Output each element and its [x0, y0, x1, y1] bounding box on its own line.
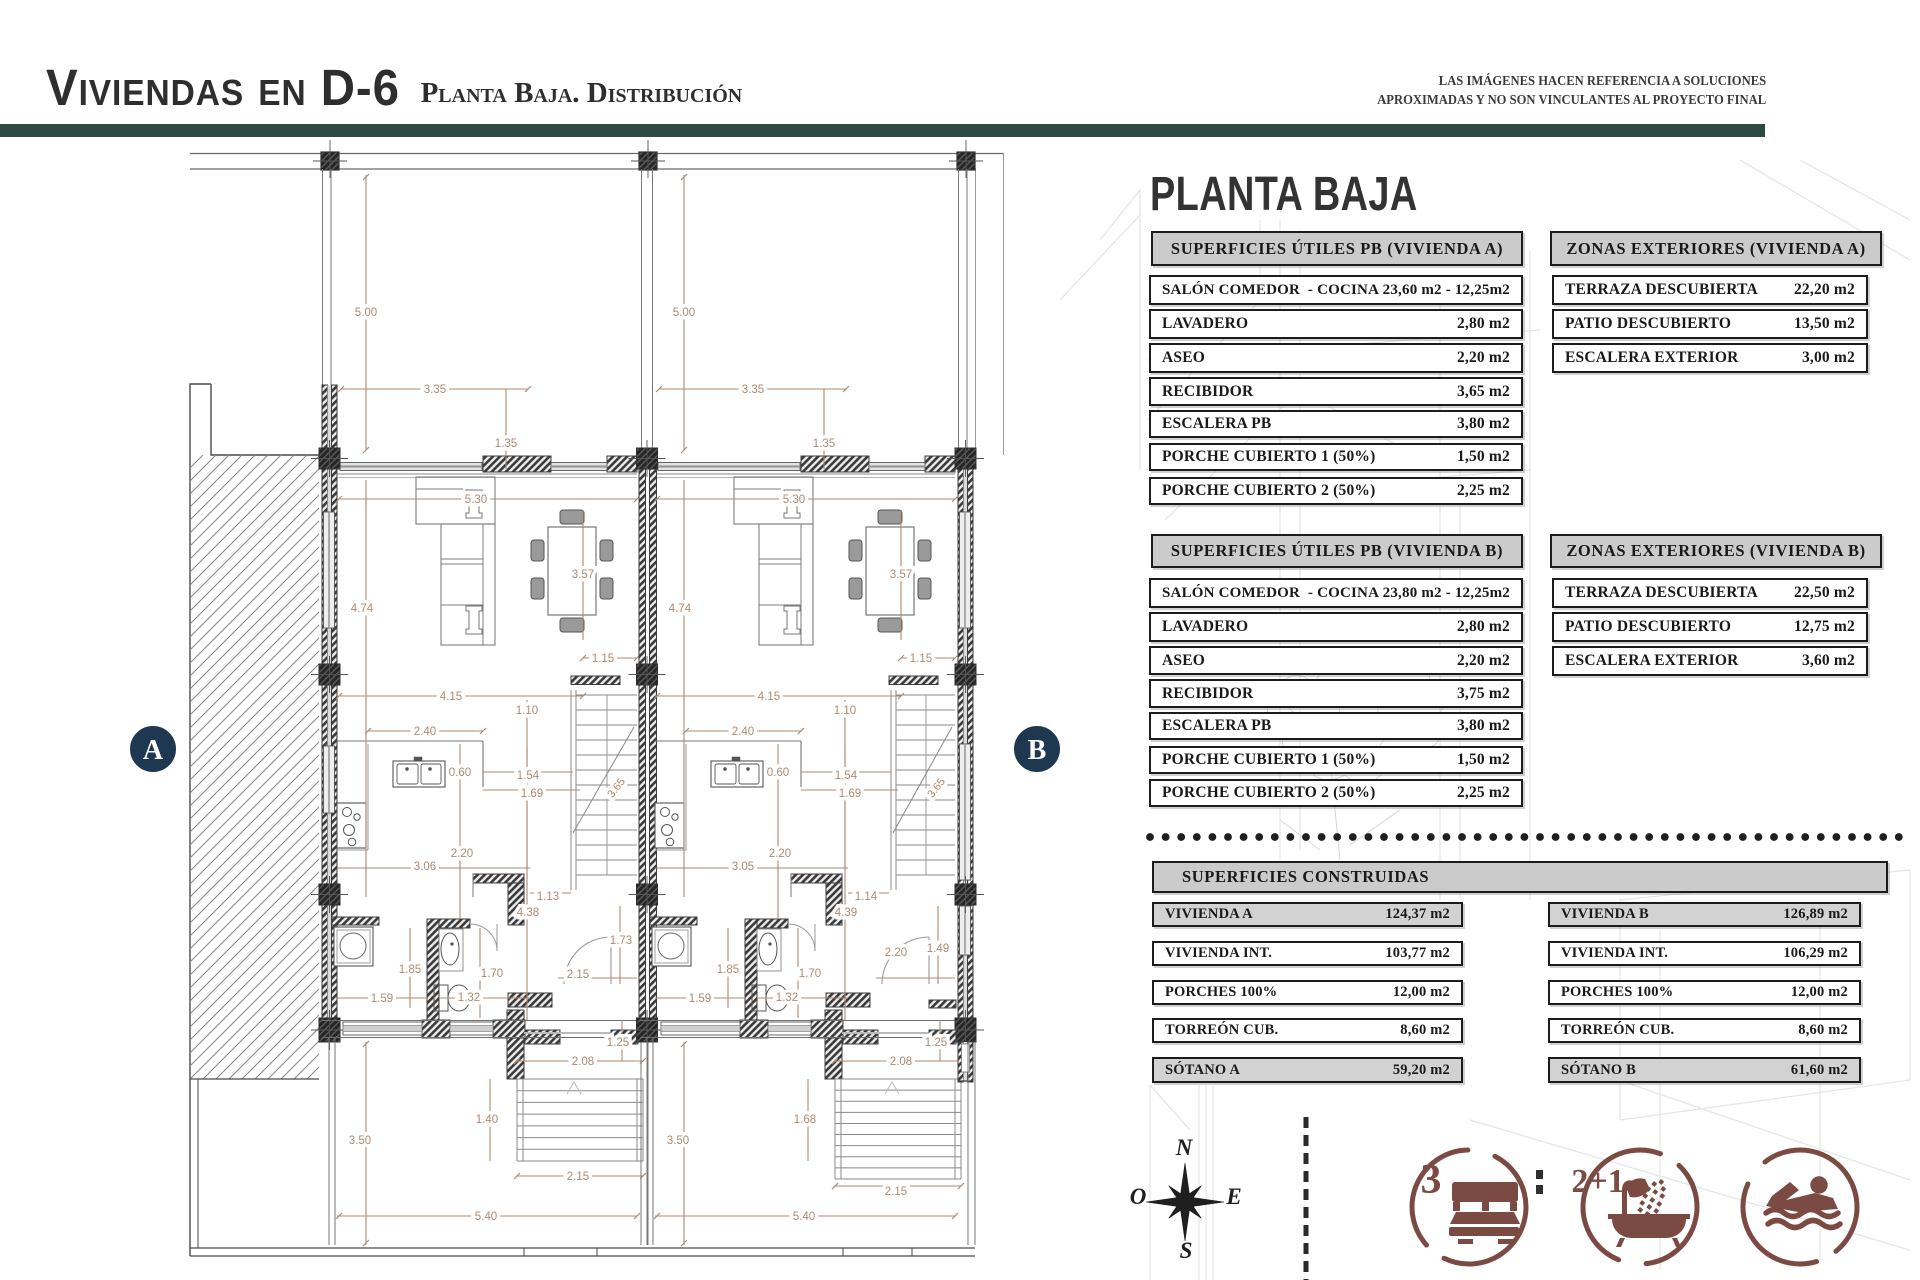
svg-text:3.65: 3.65	[925, 776, 948, 800]
svg-text:4.15: 4.15	[440, 691, 462, 703]
svg-text:4.15: 4.15	[758, 691, 780, 703]
svg-text:1.59: 1.59	[371, 993, 393, 1005]
svg-text:1.32: 1.32	[458, 992, 480, 1004]
svg-text:3.50: 3.50	[667, 1135, 689, 1147]
svg-text:1.25: 1.25	[925, 1037, 947, 1049]
svg-text:1.10: 1.10	[834, 705, 856, 717]
svg-text:0.60: 0.60	[449, 767, 471, 779]
svg-text:1.15: 1.15	[910, 653, 932, 665]
svg-text:5.00: 5.00	[355, 307, 377, 319]
svg-text:3.35: 3.35	[742, 384, 764, 396]
svg-text:B: B	[1028, 735, 1047, 766]
svg-text:1.32: 1.32	[776, 992, 798, 1004]
svg-text:2.20: 2.20	[451, 848, 473, 860]
svg-text:2.40: 2.40	[414, 726, 436, 738]
svg-text:N: N	[1175, 1135, 1194, 1160]
svg-text:1.25: 1.25	[607, 1037, 629, 1049]
svg-text:1.14: 1.14	[855, 891, 878, 903]
svg-text:1.10: 1.10	[516, 705, 538, 717]
svg-text:3.65: 3.65	[605, 776, 628, 800]
svg-text:0.60: 0.60	[767, 767, 789, 779]
svg-text:3.05: 3.05	[732, 861, 754, 873]
svg-text:2.15: 2.15	[567, 1171, 589, 1183]
svg-text:2.15: 2.15	[567, 969, 589, 981]
svg-text:2.15: 2.15	[885, 1186, 907, 1198]
svg-text:1.70: 1.70	[799, 968, 821, 980]
svg-text:5.30: 5.30	[783, 494, 805, 506]
svg-text:3.35: 3.35	[424, 384, 446, 396]
svg-text:1.35: 1.35	[813, 438, 835, 450]
svg-text:E: E	[1225, 1184, 1241, 1209]
svg-text:5.00: 5.00	[673, 307, 695, 319]
svg-text:3.57: 3.57	[890, 569, 912, 581]
svg-text:3.50: 3.50	[349, 1135, 371, 1147]
svg-text:2.40: 2.40	[732, 726, 754, 738]
svg-text:1.69: 1.69	[839, 788, 861, 800]
svg-text:2.20: 2.20	[769, 848, 791, 860]
svg-text:3.06: 3.06	[414, 861, 436, 873]
svg-text:1.59: 1.59	[689, 993, 711, 1005]
svg-text:1.73: 1.73	[610, 935, 632, 947]
svg-text:2+1: 2+1	[1571, 1163, 1624, 1200]
svg-text:5.40: 5.40	[793, 1211, 815, 1223]
svg-text:1.54: 1.54	[835, 770, 858, 782]
svg-text:1.85: 1.85	[717, 964, 739, 976]
svg-text:2.08: 2.08	[572, 1056, 594, 1068]
svg-text:A: A	[143, 735, 164, 766]
svg-text:5.40: 5.40	[475, 1211, 497, 1223]
svg-text:4.74: 4.74	[351, 603, 374, 615]
svg-text:1.85: 1.85	[399, 964, 421, 976]
svg-text:3.57: 3.57	[572, 569, 594, 581]
svg-text:S: S	[1180, 1238, 1193, 1263]
svg-text:O: O	[1130, 1184, 1147, 1209]
svg-text:1.15: 1.15	[592, 653, 614, 665]
svg-text:1.35: 1.35	[495, 438, 517, 450]
svg-text:5.30: 5.30	[465, 494, 487, 506]
svg-text:4.74: 4.74	[669, 603, 692, 615]
svg-text:1.70: 1.70	[481, 968, 503, 980]
svg-text:2.08: 2.08	[890, 1056, 912, 1068]
svg-text:1.40: 1.40	[476, 1114, 498, 1126]
svg-text:1.49: 1.49	[927, 943, 949, 955]
svg-text:3: 3	[1421, 1157, 1442, 1203]
svg-text:2.20: 2.20	[885, 947, 907, 959]
svg-text:1.69: 1.69	[521, 788, 543, 800]
svg-text:4.39: 4.39	[835, 907, 857, 919]
svg-text:1.68: 1.68	[794, 1114, 816, 1126]
svg-text:1.54: 1.54	[517, 770, 540, 782]
svg-text:4.38: 4.38	[517, 907, 539, 919]
svg-text:1.13: 1.13	[537, 891, 559, 903]
